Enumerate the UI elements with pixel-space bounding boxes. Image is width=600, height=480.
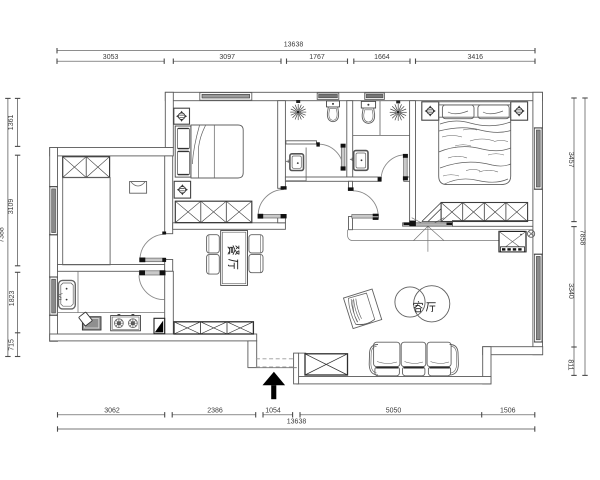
svg-text:3053: 3053 (103, 54, 119, 61)
svg-text:3457: 3457 (567, 152, 574, 168)
svg-text:715: 715 (8, 339, 15, 351)
svg-text:3416: 3416 (468, 54, 484, 61)
svg-text:1054: 1054 (265, 408, 281, 415)
svg-text:2386: 2386 (207, 408, 223, 415)
svg-text:1767: 1767 (309, 54, 325, 61)
svg-text:811: 811 (567, 359, 574, 370)
svg-text:7388: 7388 (0, 227, 5, 243)
svg-text:1361: 1361 (8, 115, 15, 131)
svg-text:3062: 3062 (104, 408, 120, 415)
svg-text:3340: 3340 (567, 283, 574, 299)
svg-text:13638: 13638 (284, 42, 304, 49)
svg-text:3109: 3109 (8, 199, 15, 215)
svg-text:5050: 5050 (386, 408, 402, 415)
svg-text:7858: 7858 (579, 230, 586, 246)
svg-text:1506: 1506 (500, 408, 516, 415)
svg-text:13638: 13638 (287, 418, 307, 425)
svg-text:3097: 3097 (219, 54, 235, 61)
svg-text:1664: 1664 (374, 54, 390, 61)
svg-text:1823: 1823 (9, 291, 16, 307)
